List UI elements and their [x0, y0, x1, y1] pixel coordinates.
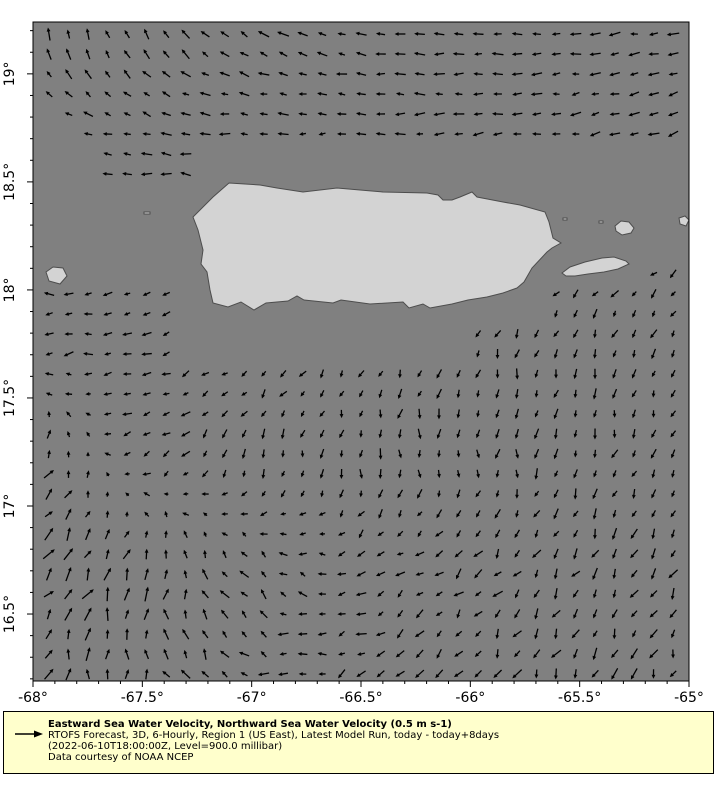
quiver-map-figure: -68°-67.5°-67°-66.5°-66°-65.5°-65°19°18.…: [0, 0, 720, 800]
legend-line-courtesy: Data courtesy of NOAA NCEP: [48, 752, 707, 763]
y-axis-tick-label: 17.5°: [2, 379, 18, 417]
y-axis-tick-label: 18.5°: [2, 163, 18, 201]
x-axis-tick-label: -68°: [18, 690, 48, 706]
x-axis-tick-label: -67°: [237, 690, 267, 706]
puerto-rico-landmass: [193, 183, 561, 310]
y-axis-tick-label: 17°: [2, 494, 18, 519]
y-axis-tick-label: 16.5°: [2, 595, 18, 633]
map-plot: -68°-67.5°-67°-66.5°-66°-65.5°-65°19°18.…: [0, 0, 720, 708]
quiver-key-arrow-icon: [14, 729, 44, 739]
legend-line-forecast: RTOFS Forecast, 3D, 6-Hourly, Region 1 (…: [48, 730, 707, 741]
legend-title: Eastward Sea Water Velocity, Northward S…: [48, 719, 707, 730]
y-axis-tick-label: 18°: [2, 278, 18, 303]
x-axis-tick-label: -67.5°: [121, 690, 164, 706]
y-axis-tick-label: 19°: [2, 61, 18, 86]
islet-speck-3-landmass: [563, 218, 567, 220]
islet-speck-2-landmass: [144, 212, 150, 214]
x-axis-tick-label: -65.5°: [558, 690, 601, 706]
legend-text: Eastward Sea Water Velocity, Northward S…: [48, 719, 707, 763]
legend-line-runtime: (2022-06-10T18:00:00Z, Level=900.0 milli…: [48, 741, 707, 752]
ocean-background: [33, 22, 689, 681]
x-axis-tick-label: -66°: [455, 690, 485, 706]
x-axis-tick-label: -66.5°: [339, 690, 382, 706]
x-axis-tick-label: -65°: [674, 690, 704, 706]
islet-speck-1-landmass: [599, 221, 603, 223]
legend-box: Eastward Sea Water Velocity, Northward S…: [3, 711, 714, 774]
